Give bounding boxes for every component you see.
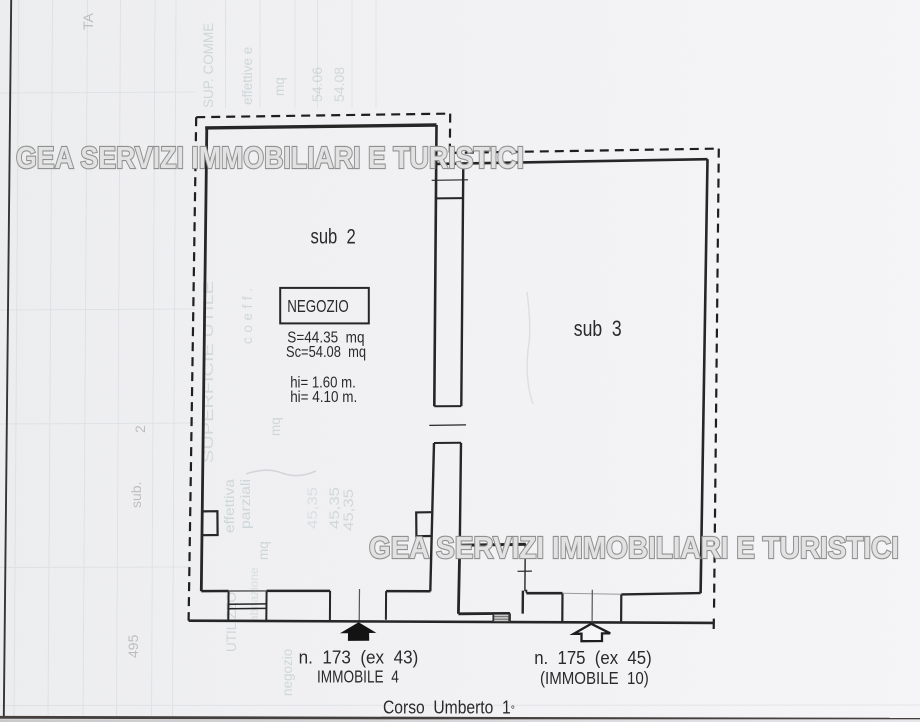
svg-text:GEA SERVIZI IMMOBILIARI E TURI: GEA SERVIZI IMMOBILIARI E TURISTICI (369, 531, 899, 565)
svg-text:mq: mq (268, 417, 283, 436)
svg-text:TA: TA (80, 12, 96, 30)
svg-text:mq: mq (272, 77, 287, 96)
svg-text:effettive e: effettive e (240, 47, 255, 105)
svg-text:54.06: 54.06 (309, 67, 325, 102)
svg-text:hi= 4.10 m.: hi= 4.10 m. (290, 389, 357, 406)
svg-text:54.08: 54.08 (331, 67, 347, 102)
svg-text:45,35: 45,35 (304, 487, 320, 529)
svg-text:sub 3: sub 3 (574, 316, 622, 341)
svg-text:Sc=54.08 mq: Sc=54.08 mq (286, 344, 366, 361)
svg-text:SUP. COMME: SUP. COMME (201, 23, 216, 108)
svg-text:(IMMOBILE 10): (IMMOBILE 10) (540, 668, 649, 688)
svg-text:n. 175 (ex 45): n. 175 (ex 45) (534, 648, 652, 668)
svg-text:45,35: 45,35 (340, 489, 356, 531)
svg-text:NEGOZIO: NEGOZIO (287, 296, 349, 316)
svg-text:sub 2: sub 2 (311, 225, 356, 248)
svg-text:Corso Umberto 1°: Corso Umberto 1° (383, 698, 515, 718)
svg-text:effettiva: effettiva (222, 478, 237, 533)
svg-text:parziali: parziali (238, 479, 253, 529)
svg-text:GEA SERVIZI IMMOBILIARI E TURI: GEA SERVIZI IMMOBILIARI E TURISTICI (16, 141, 524, 175)
svg-text:negozio: negozio (280, 649, 295, 696)
svg-text:495: 495 (125, 634, 141, 658)
svg-text:2: 2 (132, 425, 148, 433)
svg-text:n. 173 (ex 43): n. 173 (ex 43) (299, 648, 419, 668)
svg-text:IMMOBILE 4: IMMOBILE 4 (317, 667, 399, 687)
svg-text:abitazione: abitazione (247, 567, 261, 622)
svg-text:mq: mq (256, 541, 271, 560)
svg-text:sub.: sub. (128, 482, 144, 508)
